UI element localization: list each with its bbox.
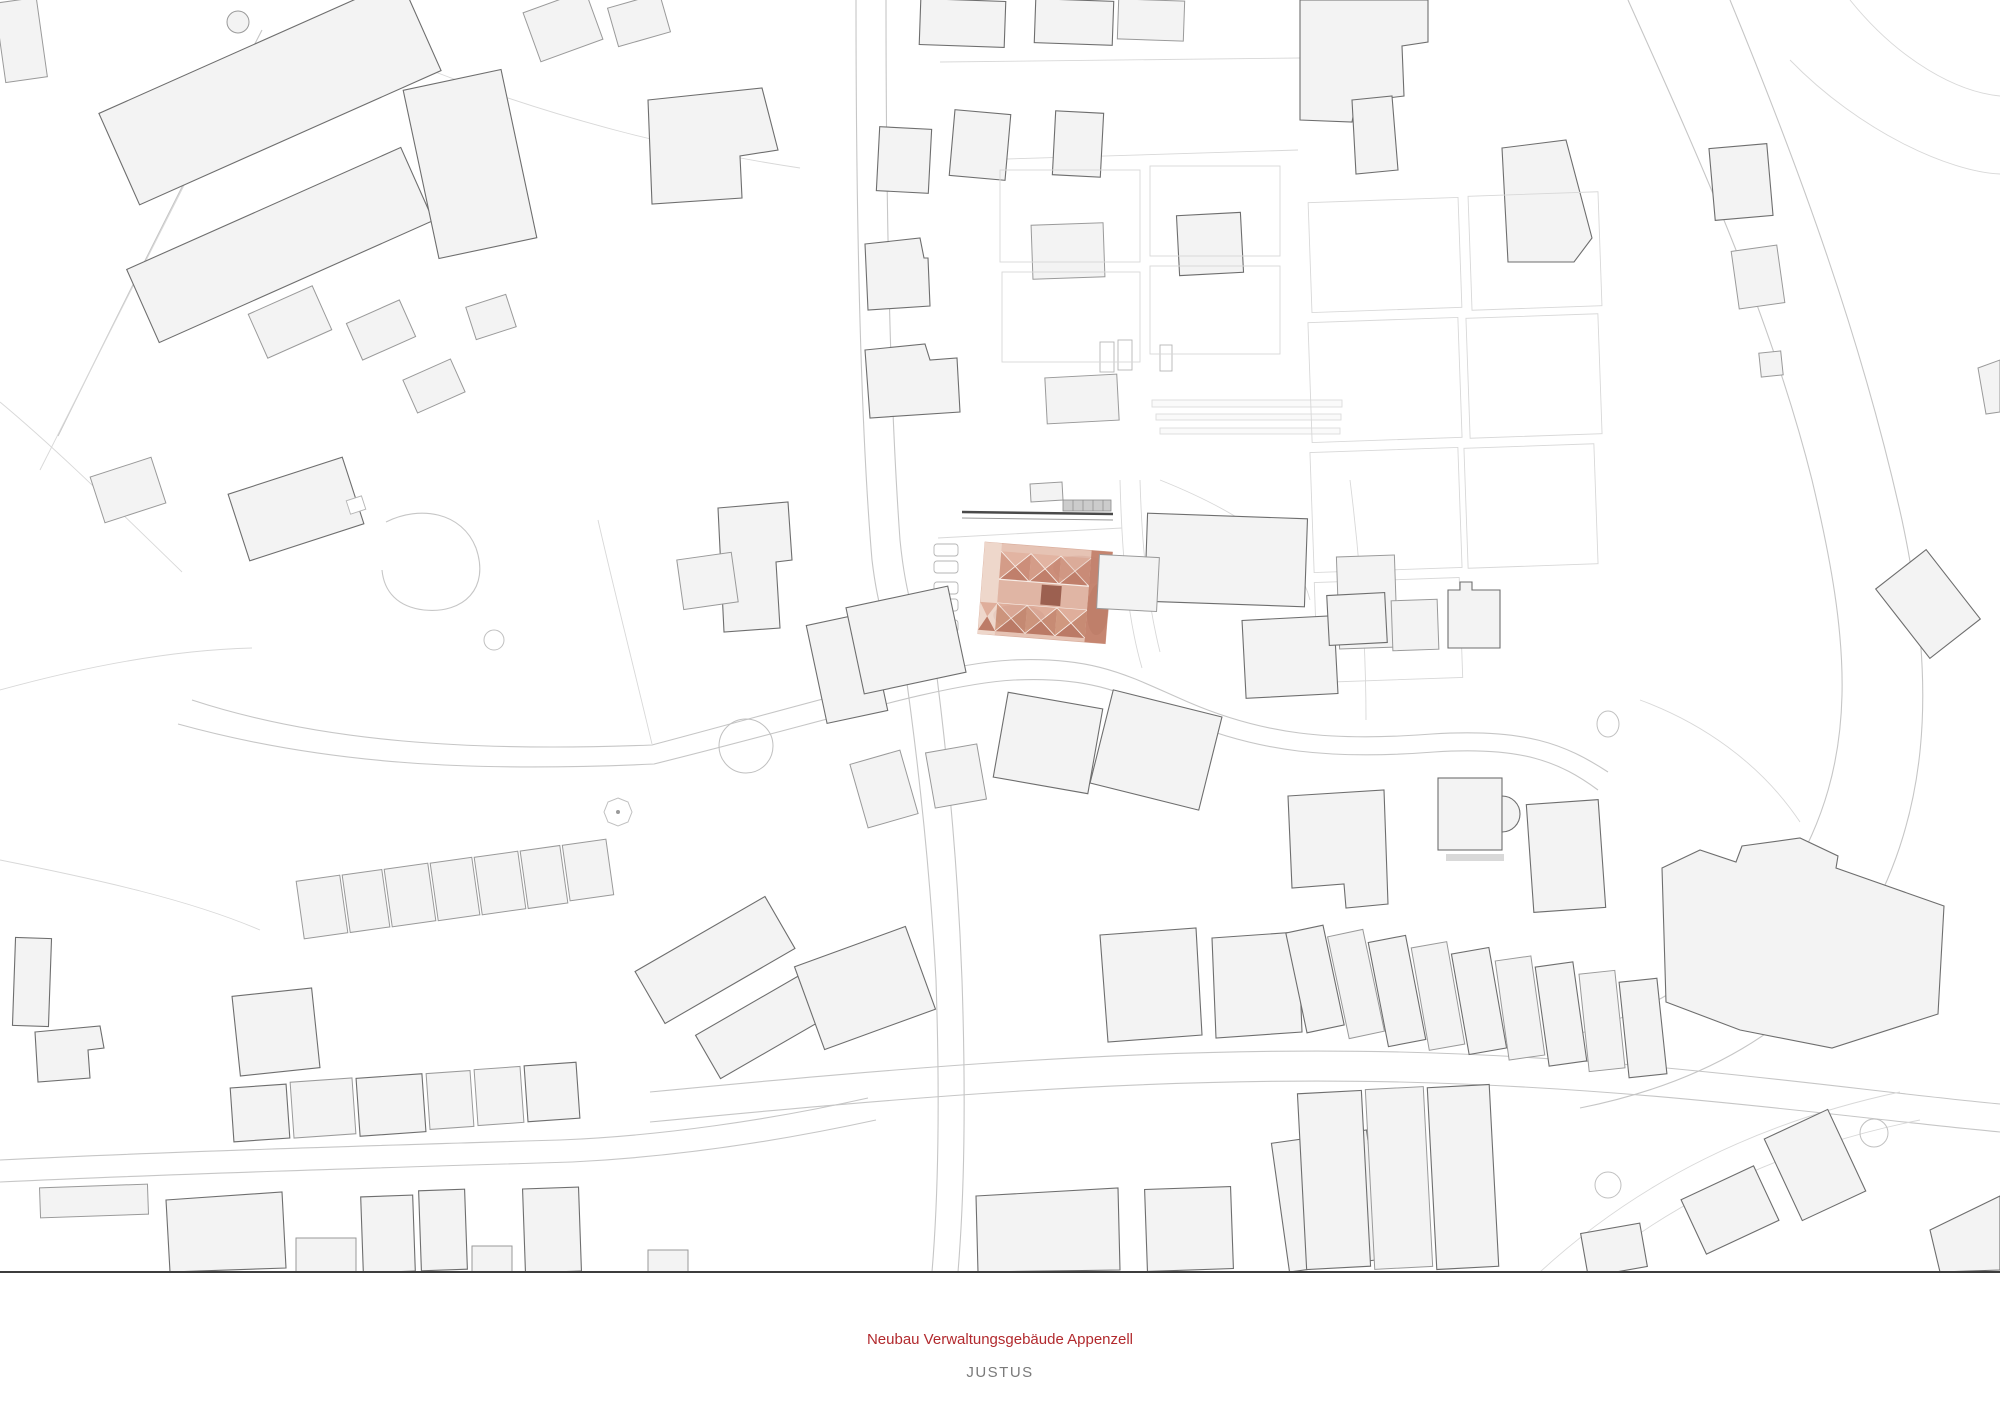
- plaza-tree-circle: [719, 719, 773, 773]
- site-canopy-line: [962, 512, 1113, 514]
- district-northeast-buildings: [1300, 0, 2000, 414]
- plaza: [484, 630, 773, 826]
- southeast-large-building: [1662, 838, 1944, 1048]
- town-center-buildings: [296, 502, 1397, 939]
- plaza-small-tree: [484, 630, 504, 650]
- district-north-buildings: [648, 0, 1342, 434]
- project-title: Neubau Verwaltungsgebäude Appenzell: [0, 1331, 2000, 1348]
- district-southcenter-buildings: [635, 897, 1385, 1273]
- highlight-building: [978, 542, 1115, 644]
- author-title: JUSTUS: [0, 1364, 2000, 1381]
- site-plan-canvas: [0, 0, 2000, 1414]
- district-northwest-buildings: [0, 0, 670, 561]
- church-with-apse: [1438, 778, 1520, 861]
- courtyard-core: [1040, 585, 1062, 607]
- page: { "titles": { "project": "Neubau Verwalt…: [0, 0, 2000, 1414]
- parking-strip: [1063, 500, 1111, 511]
- district-southwest-buildings: [12, 937, 688, 1273]
